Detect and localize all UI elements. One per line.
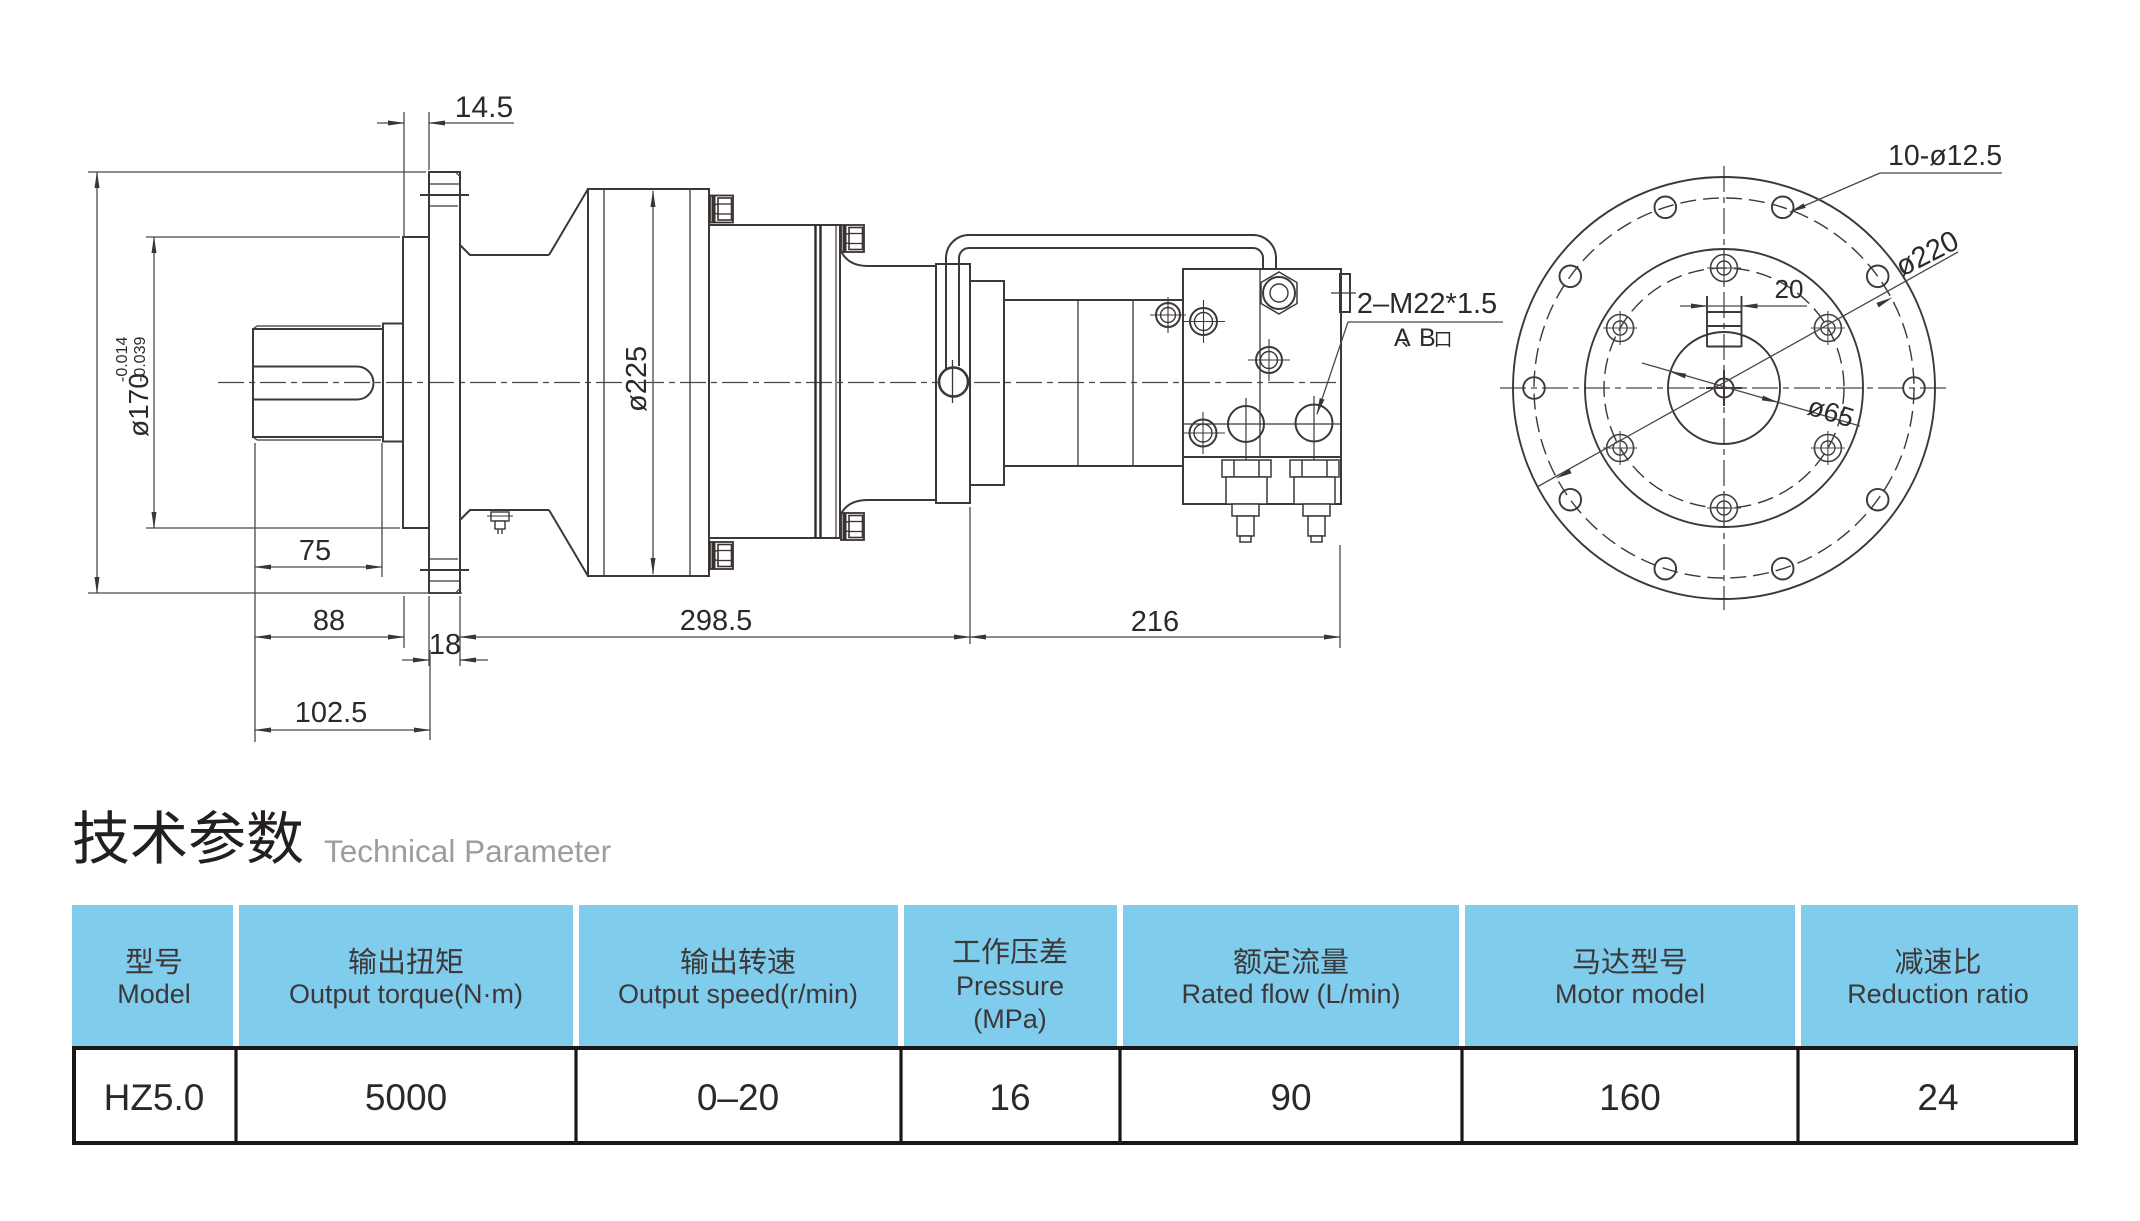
svg-text:ø220: ø220 bbox=[1891, 225, 1964, 284]
svg-text:Output torque(N·m): Output torque(N·m) bbox=[289, 979, 523, 1009]
svg-text:20: 20 bbox=[1775, 274, 1804, 304]
svg-text:(MPa): (MPa) bbox=[973, 1004, 1047, 1034]
svg-text:Technical Parameter: Technical Parameter bbox=[324, 833, 611, 869]
svg-text:ø225: ø225 bbox=[621, 346, 653, 412]
svg-text:Rated flow (L/min): Rated flow (L/min) bbox=[1181, 979, 1400, 1009]
svg-text:75: 75 bbox=[299, 535, 331, 567]
svg-text:ø65: ø65 bbox=[1804, 391, 1857, 433]
svg-text:5000: 5000 bbox=[365, 1077, 447, 1118]
svg-text:88: 88 bbox=[313, 605, 345, 637]
svg-text:-0.014: -0.014 bbox=[114, 337, 131, 382]
svg-text:160: 160 bbox=[1599, 1077, 1661, 1118]
svg-text:B: B bbox=[1419, 324, 1436, 352]
svg-text:90: 90 bbox=[1270, 1077, 1311, 1118]
svg-text:0–20: 0–20 bbox=[697, 1077, 779, 1118]
svg-text:14.5: 14.5 bbox=[455, 91, 513, 124]
svg-text:Pressure: Pressure bbox=[956, 971, 1064, 1001]
svg-text:Reduction ratio: Reduction ratio bbox=[1847, 979, 2029, 1009]
svg-text:24: 24 bbox=[1917, 1077, 1958, 1118]
svg-text:10-ø12.5: 10-ø12.5 bbox=[1888, 140, 2002, 172]
svg-text:298.5: 298.5 bbox=[680, 605, 753, 637]
svg-text:-0.039: -0.039 bbox=[132, 337, 149, 382]
svg-text:A: A bbox=[1394, 324, 1411, 352]
svg-text:216: 216 bbox=[1131, 606, 1179, 638]
svg-text:18: 18 bbox=[429, 629, 461, 661]
svg-text:Motor model: Motor model bbox=[1555, 979, 1705, 1009]
svg-text:102.5: 102.5 bbox=[295, 697, 368, 729]
svg-text:16: 16 bbox=[989, 1077, 1030, 1118]
svg-text:HZ5.0: HZ5.0 bbox=[104, 1077, 205, 1118]
svg-text:Output speed(r/min): Output speed(r/min) bbox=[618, 979, 858, 1009]
svg-text:Model: Model bbox=[117, 979, 191, 1009]
svg-text:2–M22*1.5: 2–M22*1.5 bbox=[1357, 288, 1497, 320]
